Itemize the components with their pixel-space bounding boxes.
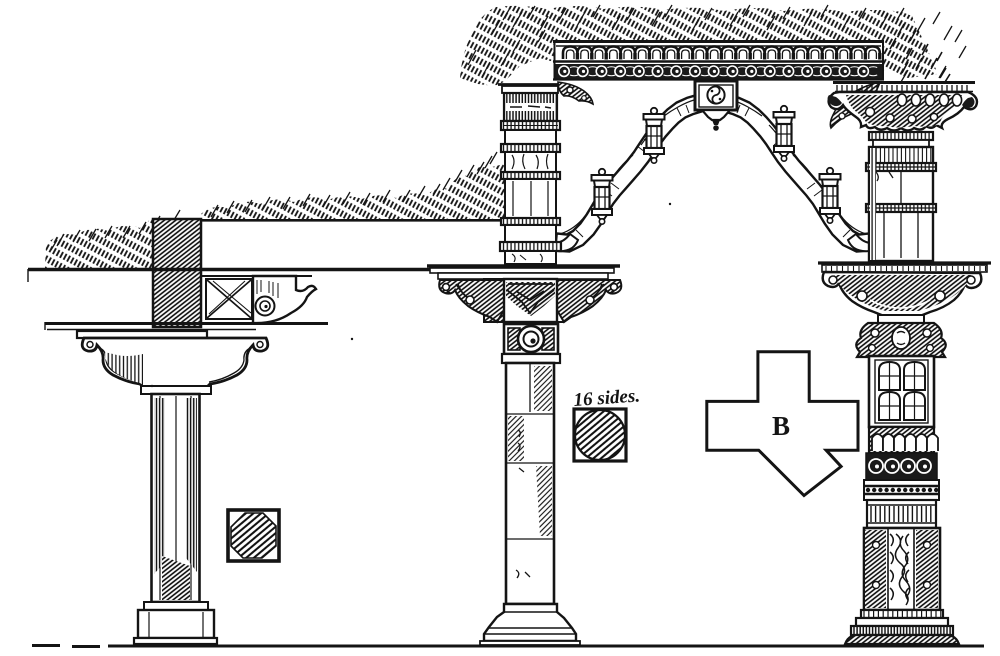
svg-text:B: B: [772, 411, 790, 441]
